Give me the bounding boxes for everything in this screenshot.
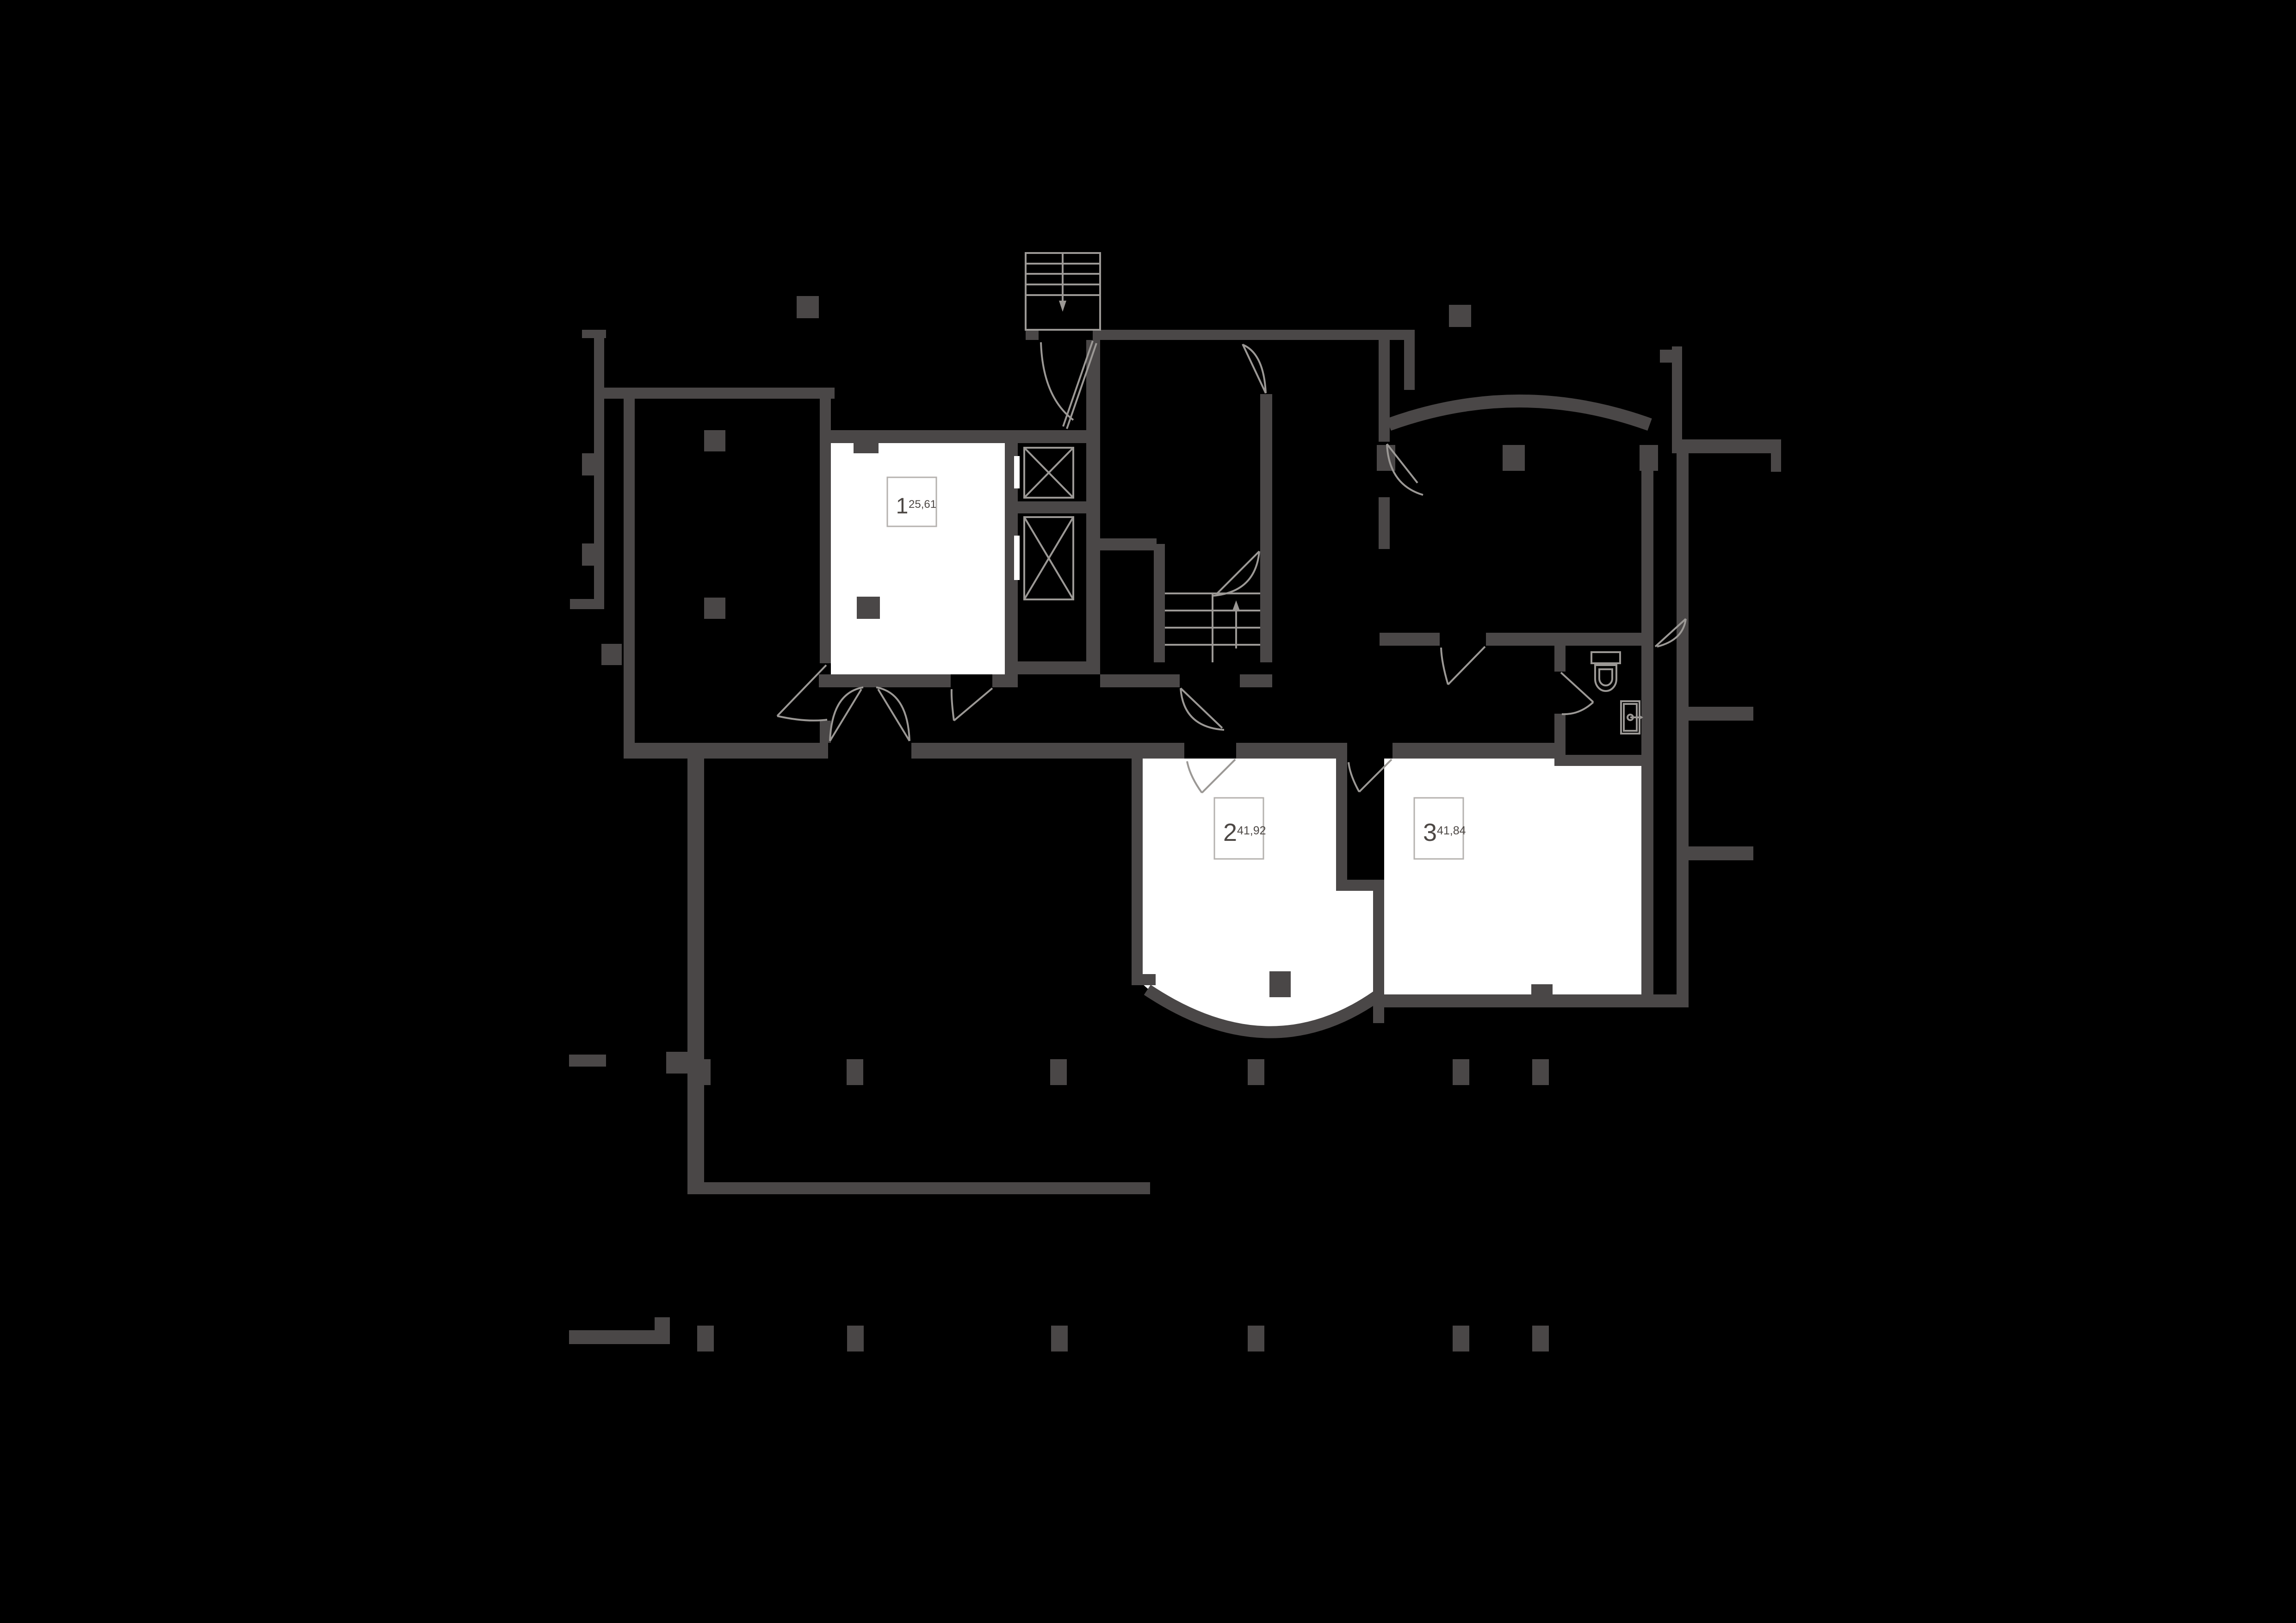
wall-segment: [1380, 633, 1440, 646]
wall-segment: [1086, 340, 1100, 674]
wall-segment: [624, 743, 828, 759]
wall-segment: [687, 759, 704, 1193]
column: [797, 296, 819, 318]
wall-segment: [1672, 346, 1682, 453]
column: [1531, 984, 1553, 1007]
column: [1269, 971, 1291, 997]
floor-plan-page: 1 25,61 2 41,92 3 41,84: [0, 0, 2296, 1623]
wall-segment: [1336, 880, 1384, 891]
wall-segment: [1005, 661, 1100, 674]
wall-segment: [1336, 759, 1347, 891]
wall-segment: [569, 1330, 655, 1344]
wall-segment: [1026, 330, 1039, 340]
wall-segment: [1379, 340, 1390, 442]
column: [694, 1059, 711, 1085]
wall-segment: [1100, 674, 1180, 687]
column: [704, 598, 725, 619]
elevator-door: [1014, 536, 1020, 580]
wall-segment: [1236, 743, 1347, 759]
wall-segment: [594, 330, 604, 607]
wall-segment: [1018, 501, 1086, 513]
column: [847, 1326, 864, 1351]
wall-segment: [911, 743, 1184, 759]
unit-area: 25,61: [909, 498, 936, 511]
wall-segment: [1641, 646, 1653, 1006]
wall-segment: [1132, 759, 1143, 985]
unit-area: 41,92: [1237, 824, 1266, 837]
column: [1248, 1059, 1264, 1085]
wall-segment: [1486, 633, 1652, 646]
unit-number: 1: [896, 494, 909, 518]
column: [666, 1052, 687, 1074]
wall-segment: [992, 674, 1018, 687]
column: [1503, 445, 1525, 471]
wall-segment: [655, 1317, 670, 1344]
unit-number: 3: [1423, 819, 1437, 846]
wall-segment: [570, 599, 604, 609]
wall-segment: [1677, 453, 1689, 1006]
column: [1453, 1326, 1469, 1351]
wall-segment: [820, 399, 831, 663]
room-3-fill[interactable]: [1384, 759, 1641, 994]
wall-segment: [601, 388, 835, 399]
unit-number: 2: [1223, 819, 1237, 846]
unit-label-2[interactable]: 2 41,92: [1214, 798, 1266, 859]
wall-segment: [819, 674, 951, 687]
unit-label-1[interactable]: 1 25,61: [887, 477, 936, 526]
column: [697, 1326, 714, 1351]
wall-segment: [1404, 330, 1415, 390]
wall-segment: [1379, 497, 1390, 549]
unit-area: 41,84: [1437, 824, 1466, 837]
column: [1248, 1326, 1264, 1351]
column: [1453, 1059, 1469, 1085]
wall-segment: [1260, 394, 1272, 662]
wall-segment: [1554, 755, 1652, 766]
wall-segment: [1100, 538, 1157, 550]
pilaster: [582, 543, 594, 566]
column: [1449, 305, 1471, 327]
wall-segment: [1154, 544, 1165, 662]
wall-segment: [1641, 470, 1653, 646]
wall-segment: [1392, 743, 1554, 759]
column: [1532, 1059, 1549, 1085]
wall-segment: [624, 399, 635, 743]
column: [1532, 1326, 1549, 1351]
wall-segment: [1689, 846, 1753, 860]
wall-segment: [1093, 330, 1404, 340]
wall-segment: [1689, 707, 1753, 721]
column: [857, 597, 880, 619]
wall-segment: [1373, 994, 1689, 1007]
column: [854, 430, 879, 453]
wall-segment: [1554, 646, 1566, 672]
column: [1050, 1059, 1067, 1085]
pilaster: [1660, 350, 1672, 363]
wall-segment: [1554, 714, 1566, 755]
unit-label-3[interactable]: 3 41,84: [1414, 798, 1466, 859]
column: [1051, 1326, 1068, 1351]
floor-plan-canvas: 1 25,61 2 41,92 3 41,84: [0, 0, 2296, 1623]
wall-segment: [1132, 974, 1156, 985]
pilaster: [582, 453, 594, 475]
column: [704, 430, 725, 451]
wall-segment: [1677, 439, 1781, 453]
wall-segment: [569, 1055, 606, 1067]
column: [601, 644, 622, 665]
arch-springer-column: [1640, 445, 1658, 471]
wall-segment: [687, 1182, 1150, 1194]
wall-segment: [1771, 453, 1781, 472]
column: [847, 1059, 863, 1085]
arch-springer-column: [1377, 445, 1395, 471]
wall-segment: [1240, 674, 1272, 687]
elevator-door: [1014, 456, 1020, 488]
